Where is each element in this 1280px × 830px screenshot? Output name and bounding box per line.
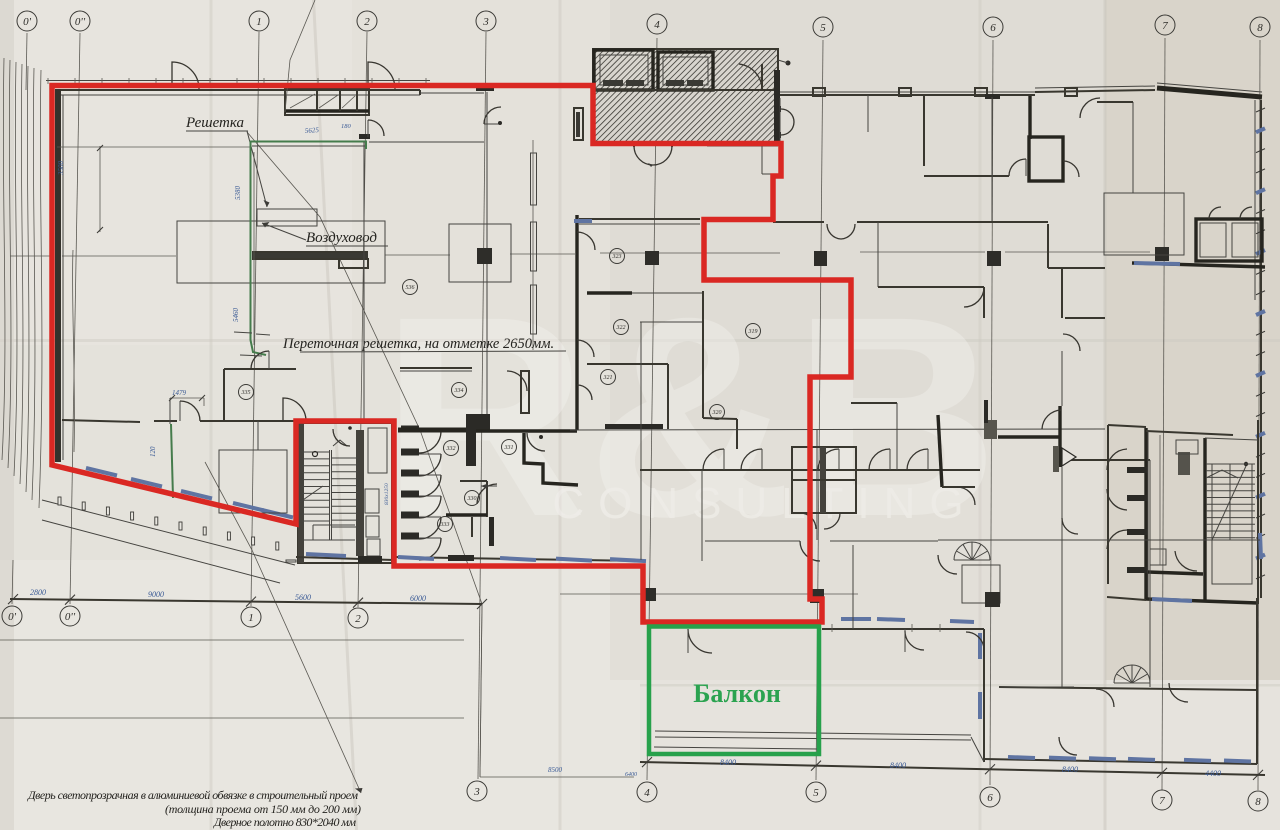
svg-text:323: 323 bbox=[612, 254, 622, 260]
svg-text:9000: 9000 bbox=[148, 590, 164, 599]
svg-text:5625: 5625 bbox=[305, 126, 320, 135]
svg-text:319: 319 bbox=[748, 329, 758, 335]
svg-text:5600: 5600 bbox=[295, 593, 311, 602]
svg-text:1: 1 bbox=[248, 612, 254, 624]
svg-text:7: 7 bbox=[1162, 20, 1168, 32]
svg-text:8500: 8500 bbox=[548, 766, 563, 774]
svg-text:335: 335 bbox=[241, 390, 251, 396]
svg-text:321: 321 bbox=[603, 375, 613, 381]
svg-text:331: 331 bbox=[504, 445, 514, 451]
svg-text:322: 322 bbox=[616, 325, 626, 331]
svg-text:2: 2 bbox=[355, 613, 361, 625]
svg-text:332: 332 bbox=[446, 446, 456, 452]
svg-text:4: 4 bbox=[644, 787, 650, 799]
svg-text:Дверь светопрозрачная в алюмин: Дверь светопрозрачная в алюминиевой обвя… bbox=[27, 788, 358, 802]
svg-text:1: 1 bbox=[256, 16, 262, 28]
svg-text:8400: 8400 bbox=[890, 761, 906, 770]
svg-text:8400: 8400 bbox=[1062, 765, 1078, 774]
svg-text:8400: 8400 bbox=[720, 758, 736, 767]
svg-text:2800: 2800 bbox=[30, 588, 46, 597]
svg-text:6: 6 bbox=[990, 22, 996, 34]
svg-text:8: 8 bbox=[1255, 796, 1261, 808]
svg-text:536: 536 bbox=[406, 285, 415, 291]
svg-text:8: 8 bbox=[1257, 22, 1263, 34]
svg-text:Переточная решетка, на отметк: Переточная решетка, на отметке 2650мм. bbox=[282, 336, 554, 352]
svg-text:Воздуховод: Воздуховод bbox=[306, 230, 377, 246]
svg-text:3: 3 bbox=[482, 16, 489, 28]
svg-text:0'': 0'' bbox=[75, 16, 86, 28]
svg-text:Дверное полотно 830*2040 мм: Дверное полотно 830*2040 мм bbox=[213, 815, 356, 829]
svg-text:120: 120 bbox=[149, 446, 157, 457]
svg-text:6: 6 bbox=[987, 792, 993, 804]
svg-text:0': 0' bbox=[23, 16, 32, 28]
svg-text:7: 7 bbox=[1159, 795, 1165, 807]
svg-text:(толщина проема от 150 мм до 2: (толщина проема от 150 мм до 200 мм) bbox=[165, 802, 361, 816]
svg-text:333: 333 bbox=[440, 522, 450, 528]
svg-text:6400: 6400 bbox=[625, 771, 637, 778]
svg-text:334: 334 bbox=[454, 387, 464, 394]
svg-text:6000: 6000 bbox=[410, 594, 426, 603]
svg-text:4: 4 bbox=[654, 19, 660, 31]
svg-text:0'': 0'' bbox=[65, 611, 76, 623]
svg-text:4400: 4400 bbox=[1205, 769, 1221, 778]
svg-text:3: 3 bbox=[473, 786, 480, 798]
svg-text:2: 2 bbox=[364, 16, 370, 28]
svg-text:180: 180 bbox=[341, 123, 352, 130]
svg-text:5: 5 bbox=[820, 22, 826, 34]
svg-text:5: 5 bbox=[813, 787, 819, 799]
svg-text:3500: 3500 bbox=[57, 161, 65, 177]
svg-text:830х1250: 830х1250 bbox=[384, 483, 390, 505]
svg-text:CONSULTING: CONSULTING bbox=[552, 479, 977, 528]
svg-text:Решетка: Решетка bbox=[185, 115, 244, 131]
svg-text:5380: 5380 bbox=[234, 186, 242, 201]
svg-text:5460: 5460 bbox=[232, 308, 240, 323]
svg-text:320: 320 bbox=[712, 410, 722, 416]
svg-text:0': 0' bbox=[8, 611, 17, 623]
svg-text:Балкон: Балкон bbox=[693, 679, 781, 708]
svg-text:330: 330 bbox=[467, 496, 477, 502]
